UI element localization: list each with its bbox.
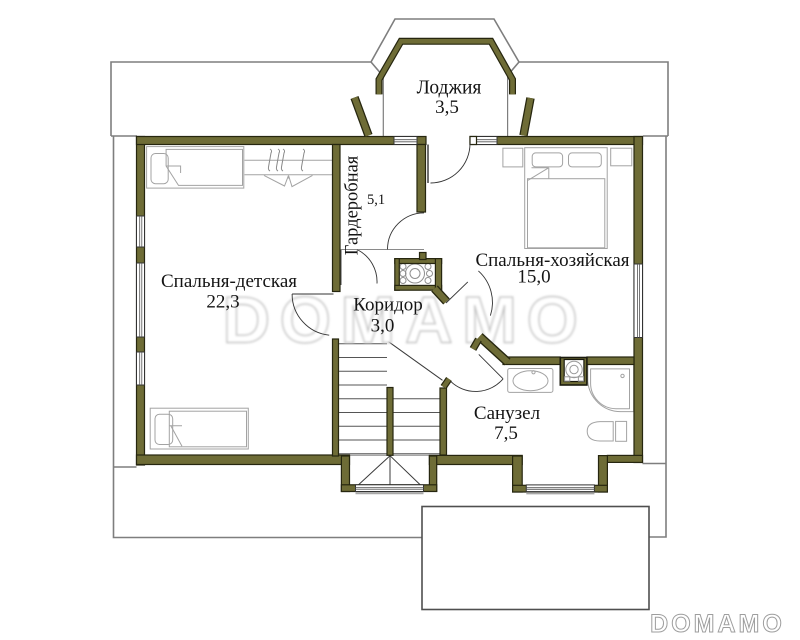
svg-text:Гардеробная: Гардеробная: [343, 155, 363, 255]
svg-text:Спальня-хозяйская: Спальня-хозяйская: [475, 250, 629, 271]
svg-text:3,5: 3,5: [435, 97, 459, 118]
svg-text:22,3: 22,3: [206, 292, 239, 313]
svg-text:Лоджия: Лоджия: [417, 78, 482, 99]
svg-text:3,0: 3,0: [371, 316, 395, 337]
svg-text:DOMAMO: DOMAMO: [650, 610, 785, 638]
svg-text:Спальня-детская: Спальня-детская: [161, 271, 297, 292]
svg-text:15,0: 15,0: [517, 267, 550, 288]
svg-text:Коридор: Коридор: [353, 295, 423, 316]
svg-text:5,1: 5,1: [367, 192, 385, 208]
svg-text:Санузел: Санузел: [474, 403, 541, 424]
svg-text:7,5: 7,5: [494, 423, 518, 444]
